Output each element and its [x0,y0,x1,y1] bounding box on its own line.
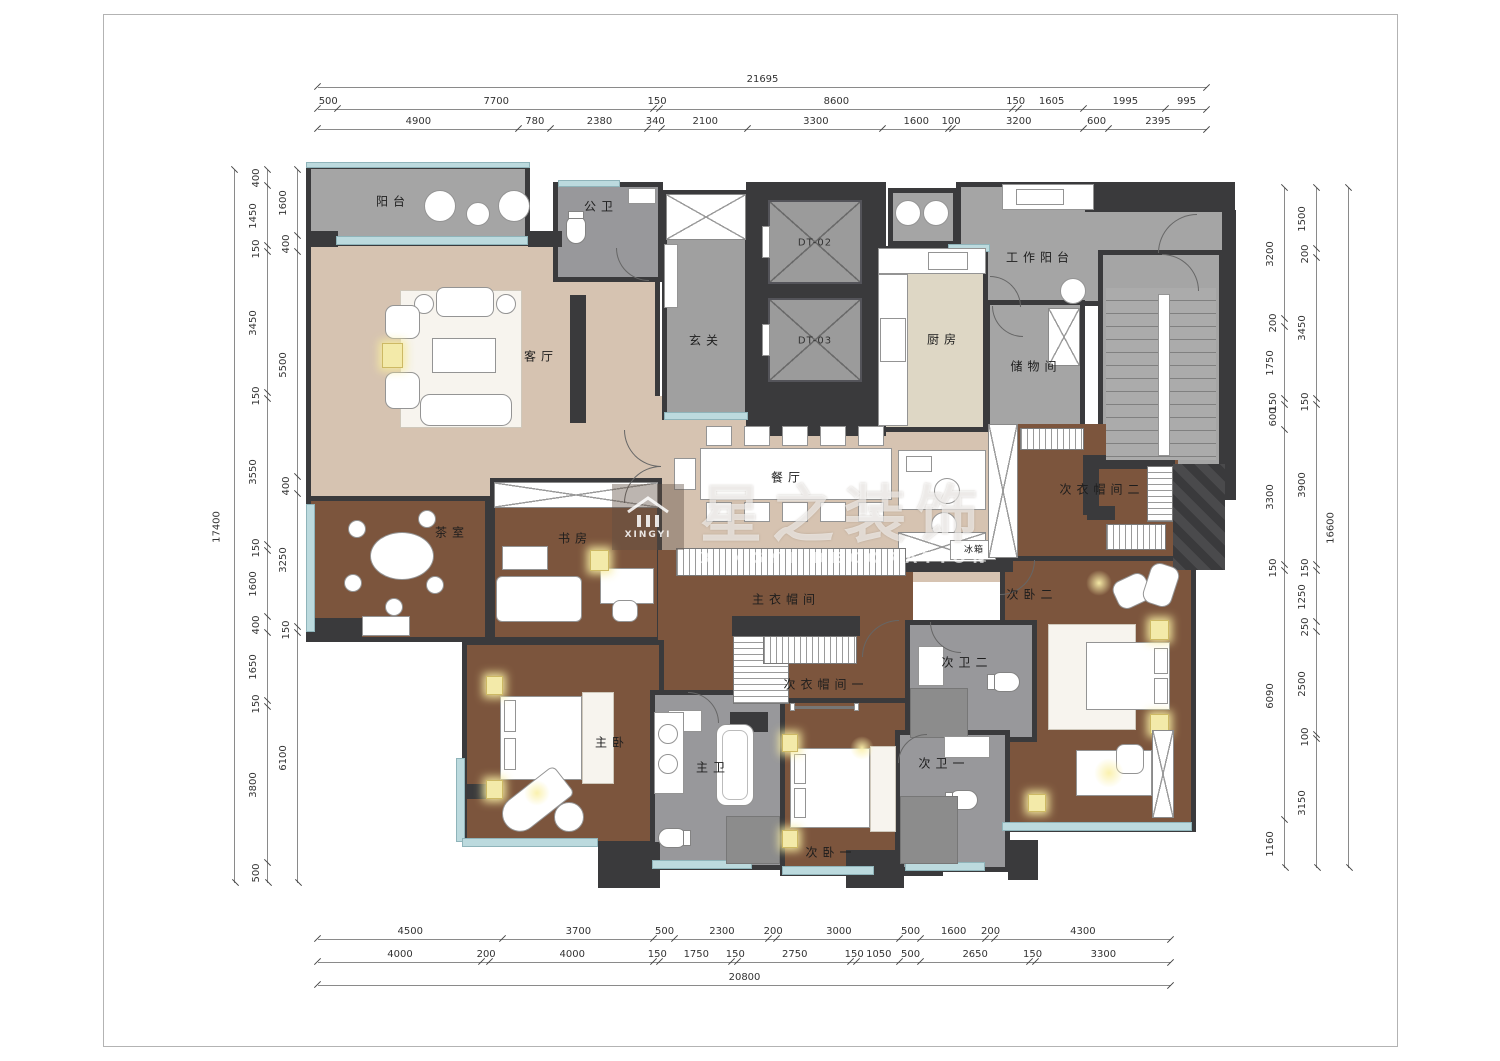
tea-table [370,532,434,580]
dim-value: 400 [251,169,262,188]
dining-chair [706,426,732,446]
dim-segment: 1750 [1261,327,1285,399]
dim-value: 500 [319,96,338,107]
dim-left-mid: 4001450150345015035501501600400165015038… [244,170,268,883]
dim-segment: 500 [244,863,268,883]
dim-segment: 4900 [318,114,519,130]
tea-stool [385,598,403,616]
dim-segment: 3300 [1261,430,1285,565]
rod-end [854,703,859,711]
room-label-bedroom1: 次卧一 [805,844,856,861]
dim-segment: 2395 [1109,114,1207,130]
dim-segment: 3250 [274,494,298,627]
window [336,236,528,245]
dim-value: 17400 [212,511,223,543]
dim-value: 500 [901,949,920,960]
dim-value: 1250 [1297,584,1308,609]
dim-segment: 1650 [244,633,268,701]
roof-icon [625,494,671,528]
brand-logo-icon: XINGYI [612,484,684,550]
pillow [504,700,516,732]
room-balcony [306,164,530,244]
room-label-work-balcony: 工作阳台 [1006,249,1074,266]
wardrobe [1020,428,1084,450]
dim-value: 4500 [398,926,423,937]
side-table [496,294,516,314]
sink [628,188,656,204]
room-label-master-bedroom: 主卧 [595,734,629,751]
dim-segment: 8600 [660,94,1012,110]
dim-segment: 16600 [1325,188,1349,868]
dim-value: 600 [1268,408,1279,427]
dim-value: 3250 [278,548,289,573]
dim-bottom-row1: 450037005002300200300050016002004300 [318,924,1171,940]
room-label-bath2: 次卫二 [941,654,992,671]
room-label-bedroom2: 次卧二 [1006,586,1057,603]
dim-segment: 600 [1084,114,1109,130]
window [1002,822,1192,831]
dim-value: 1600 [904,116,929,127]
nightstand [486,780,503,799]
dim-value: 3450 [1297,316,1308,341]
dim-value: 1605 [1039,96,1064,107]
pillow [794,754,806,784]
pillow [504,738,516,770]
dim-segment: 3300 [748,114,883,130]
dim-segment: 1450 [244,186,268,245]
pillow [1154,648,1168,674]
room-label-master-bath: 主卫 [696,759,730,776]
dim-segment: 2750 [738,947,851,963]
foyer-cabinet [664,244,678,308]
dim-segment: 1160 [1261,820,1285,868]
ottoman [554,802,584,832]
dim-value: 2300 [709,926,734,937]
dim-value: 1600 [248,571,259,596]
ceiling-light [850,736,874,760]
dim-value: 2500 [1297,671,1308,696]
wall [1087,506,1115,520]
dim-segment: 2650 [921,947,1030,963]
dim-segment: 7700 [338,94,654,110]
dim-segment: 4000 [490,947,654,963]
dim-top-overall: 21695 [318,72,1207,88]
utility-sink [1016,189,1064,205]
dim-segment: 3450 [1293,258,1317,399]
dim-top-row2: 4900780238034021003300160010032006002395 [318,114,1207,130]
balcony-table [466,202,490,226]
tea-stool [418,510,436,528]
toilet [658,828,686,848]
dim-segment: 4500 [318,924,503,940]
wall [306,231,338,247]
daybed [496,576,582,622]
dim-segment: 3800 [244,707,268,863]
dim-value: 3700 [566,926,591,937]
room-label-tea: 茶室 [435,524,469,541]
stove [880,318,906,362]
wardrobe [763,636,857,664]
desk [600,568,654,604]
vanity-sink [918,646,944,686]
bedroom1-rug [870,746,896,832]
dim-segment: 3200 [1261,188,1285,319]
dim-top-row1: 5007700150860015016051995995 [318,94,1207,110]
lamp-glow [524,780,550,806]
wardrobe-cabinet [1152,730,1174,818]
room-label-elevator2: DT-03 [798,336,832,347]
dim-value: 6100 [278,745,289,770]
wall [1222,210,1236,500]
room-label-bath1: 次卫一 [918,755,969,772]
dim-right-overall: 16600 [1325,188,1349,868]
ceiling-light [1086,570,1112,596]
dim-value: 1600 [941,926,966,937]
dim-value: 1750 [684,949,709,960]
nightstand [782,830,798,848]
dining-chair [744,426,770,446]
window [306,162,530,168]
dim-segment: 21695 [318,72,1207,88]
watermark: XINGYI 星之装饰 XINGYI DECORATION [612,484,992,567]
dim-value: 1500 [1297,206,1308,231]
dim-value: 780 [525,116,544,127]
window [462,838,598,847]
dim-segment: 6090 [1261,571,1285,820]
dim-segment: 1995 [1084,94,1166,110]
dim-bottom-row2: 4000200400015017501502750150105050026501… [318,947,1171,963]
dim-segment: 3150 [1293,739,1317,868]
dim-value: 4000 [560,949,585,960]
dim-left-inner: 1600400550040032501506100 [274,170,298,883]
elevator-door [762,324,770,356]
dim-segment: 3300 [1036,947,1171,963]
shower [910,688,968,738]
dim-value: 1995 [1113,96,1138,107]
lamp [1028,794,1046,812]
stair-rail [1158,294,1170,456]
room-label-elevator1: DT-02 [798,238,832,249]
dim-value: 3150 [1297,791,1308,816]
room-label-foyer: 玄关 [689,332,723,349]
dim-segment: 2380 [551,114,649,130]
tea-stool [348,520,366,538]
dim-value: 2380 [587,116,612,127]
dim-segment: 4000 [318,947,482,963]
dim-segment: 780 [519,114,551,130]
sink [658,754,678,774]
dim-segment: 4300 [995,924,1171,940]
dim-segment: 500 [900,924,921,940]
dim-value: 16600 [1326,512,1337,544]
balcony-chair [424,190,456,222]
dim-value: 4300 [1070,926,1095,937]
nightstand [782,734,798,752]
elevator-door [762,226,770,258]
dim-value: 995 [1177,96,1196,107]
dim-value: 400 [281,234,292,253]
brand-name-cn: 星之装饰 [700,484,992,546]
dim-segment: 1750 [660,947,732,963]
desk-light [1094,758,1124,788]
shower [726,816,780,864]
room-label-study: 书房 [558,530,592,547]
dim-segment: 500 [318,94,338,110]
dim-segment: 3000 [777,924,900,940]
kitchen-sink [928,252,968,270]
room-label-closet1: 次衣帽间一 [783,676,868,693]
dim-value: 1160 [1265,831,1276,856]
island-sink [906,456,932,472]
dim-segment: 995 [1166,94,1207,110]
wall [528,231,562,247]
toilet [992,672,1020,692]
nightstand [486,676,503,695]
dim-segment: 3200 [953,114,1084,130]
desk-chair [612,600,638,622]
tea-stool [426,576,444,594]
dim-value: 3450 [248,310,259,335]
dim-value: 3800 [248,772,259,797]
dim-value: 1650 [248,654,259,679]
dim-value: 6090 [1265,683,1276,708]
brand-logo-caption: XINGYI [625,530,672,540]
threshold [664,412,748,420]
balcony-chair [498,190,530,222]
wall [1085,182,1235,212]
room-label-public-bath: 公卫 [584,198,618,215]
dim-value: 3000 [826,926,851,937]
dim-segment: 1600 [921,924,987,940]
wardrobe [1147,466,1173,522]
armchair [385,372,420,409]
room-label-kitchen: 厨房 [927,331,961,348]
dim-segment: 3450 [244,252,268,393]
tea-stool [344,574,362,592]
dim-segment: 1600 [274,170,298,236]
dim-value: 4900 [406,116,431,127]
dim-value: 3550 [248,459,259,484]
room-label-storage: 储物间 [1010,358,1061,375]
dining-chair [858,426,884,446]
dim-right-inner: 32002001750150600330015060901160 [1261,188,1285,868]
dim-segment: 3700 [503,924,655,940]
dim-value: 1050 [866,949,891,960]
dim-segment: 2300 [675,924,769,940]
dim-segment: 1600 [883,114,949,130]
dim-value: 2100 [693,116,718,127]
dim-value: 500 [901,926,920,937]
washing-machine [1060,278,1086,304]
ac-fan [923,200,949,226]
dim-value: 3300 [1265,485,1276,510]
dining-chair [782,426,808,446]
dim-value: 500 [655,926,674,937]
room-label-living: 客厅 [524,348,558,365]
dim-segment: 6100 [274,633,298,883]
dim-segment: 1605 [1019,94,1085,110]
window [782,866,874,875]
armchair [385,305,420,339]
dim-value: 400 [281,476,292,495]
brand-text: 星之装饰 XINGYI DECORATION [700,484,992,567]
dim-value: 2650 [962,949,987,960]
dim-value: 600 [1087,116,1106,127]
wall [1008,840,1038,880]
wardrobe [1106,524,1166,550]
window [558,180,620,187]
dim-segment: 17400 [211,170,235,883]
rod-end [790,703,795,711]
brand-name-en: XINGYI DECORATION [700,549,992,567]
dim-value: 21695 [747,74,779,85]
sofa [436,287,494,317]
dim-value: 20800 [729,972,761,983]
dim-segment: 1600 [244,551,268,617]
tall-cabinet [988,424,1018,558]
dim-bottom-overall: 20800 [318,970,1171,986]
window [456,758,465,842]
dim-value: 8600 [824,96,849,107]
dim-segment: 1250 [1293,571,1317,622]
dining-chair [820,426,846,446]
dim-segment: 20800 [318,970,1171,986]
dim-value: 5500 [278,352,289,377]
dim-right-mid: 150020034501503900150125025025001003150 [1293,188,1317,868]
tv-wall [570,295,586,423]
dim-left-overall: 17400 [211,170,235,883]
dim-value: 3300 [1091,949,1116,960]
room-label-balcony: 阳台 [376,193,410,210]
ac-fan [895,200,921,226]
shaft-void [1173,464,1225,570]
dim-value: 7700 [484,96,509,107]
dim-segment: 3900 [1293,405,1317,565]
pillow [794,788,806,818]
toilet [566,216,586,244]
window [306,504,315,632]
dim-value: 3200 [1265,241,1276,266]
dim-segment: 1500 [1293,188,1317,249]
desk-lamp [590,550,609,571]
shoe-cabinet [666,194,746,240]
room-label-master-closet: 主衣帽间 [752,591,820,608]
dim-value: 2395 [1145,116,1170,127]
floor-lamp [382,343,403,368]
room-label-closet2: 次衣帽间二 [1059,481,1144,498]
dim-segment: 5500 [274,252,298,477]
sink [658,724,678,744]
pillow [1154,678,1168,704]
dim-value: 3300 [803,116,828,127]
piano [502,546,548,570]
sideboard [362,616,410,636]
dim-segment: 2100 [662,114,748,130]
dim-value: 3200 [1006,116,1031,127]
dim-value: 3900 [1297,472,1308,497]
dim-value: 1450 [248,203,259,228]
dim-value: 2750 [782,949,807,960]
dim-value: 4000 [387,949,412,960]
wall [732,616,860,636]
sofa [420,394,512,426]
dim-segment: 1050 [857,947,900,963]
dim-segment: 3550 [244,399,268,544]
dim-segment: 2500 [1293,632,1317,734]
shower [900,796,958,864]
nightstand [1150,620,1169,640]
coffee-table [432,338,496,373]
wall [598,842,660,888]
dim-value: 1600 [278,190,289,215]
dim-value: 1750 [1265,350,1276,375]
dim-segment: 500 [900,947,921,963]
dim-segment: 500 [654,924,675,940]
dim-value: 500 [251,863,262,882]
closet-rod [793,706,857,709]
dim-value: 400 [251,615,262,634]
